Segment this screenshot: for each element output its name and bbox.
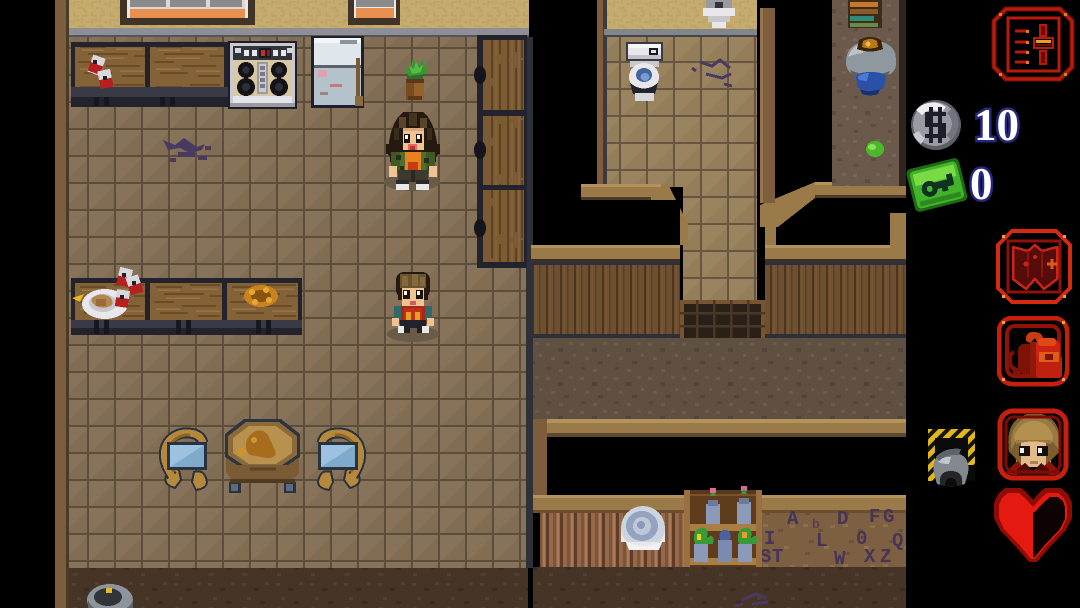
svg-text:X: X xyxy=(864,546,876,568)
svg-text:0: 0 xyxy=(970,159,993,209)
svg-text:W: W xyxy=(834,548,846,570)
svg-text:Q: Q xyxy=(892,530,903,552)
svg-text:G: G xyxy=(883,506,894,528)
svg-text:L: L xyxy=(816,530,827,552)
svg-text:F: F xyxy=(869,506,880,528)
svg-text:A: A xyxy=(787,508,799,530)
svg-text:T: T xyxy=(772,546,783,568)
svg-text:D: D xyxy=(837,508,848,530)
svg-text:Z: Z xyxy=(880,546,891,568)
svg-text:10: 10 xyxy=(974,100,1019,150)
